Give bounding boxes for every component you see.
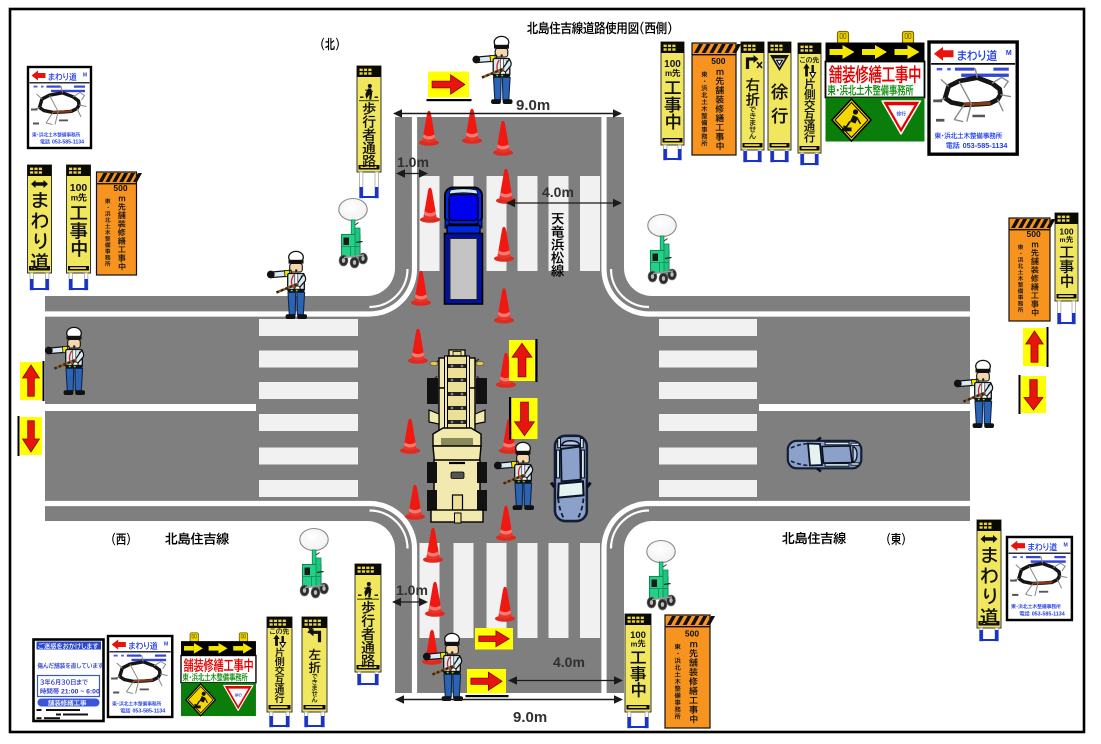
svg-text:500: 500 bbox=[113, 183, 127, 193]
svg-text:4.0m: 4.0m bbox=[553, 654, 585, 670]
svg-text:500: 500 bbox=[1027, 229, 1041, 239]
svg-text:1.0m: 1.0m bbox=[396, 582, 428, 598]
svg-text:m: m bbox=[631, 639, 638, 648]
svg-text:m: m bbox=[665, 69, 672, 78]
svg-text:m: m bbox=[71, 193, 78, 203]
svg-text:500: 500 bbox=[685, 628, 699, 638]
svg-text:9.0m: 9.0m bbox=[513, 709, 547, 726]
svg-text:m: m bbox=[1059, 237, 1065, 244]
svg-text:500: 500 bbox=[711, 56, 725, 66]
svg-text:9.0m: 9.0m bbox=[516, 97, 550, 114]
svg-text:4.0m: 4.0m bbox=[542, 184, 574, 200]
svg-text:100: 100 bbox=[1059, 226, 1073, 236]
svg-text:1.0m: 1.0m bbox=[397, 154, 429, 170]
svg-text:21:00 ~ 6:00: 21:00 ~ 6:00 bbox=[61, 689, 100, 696]
